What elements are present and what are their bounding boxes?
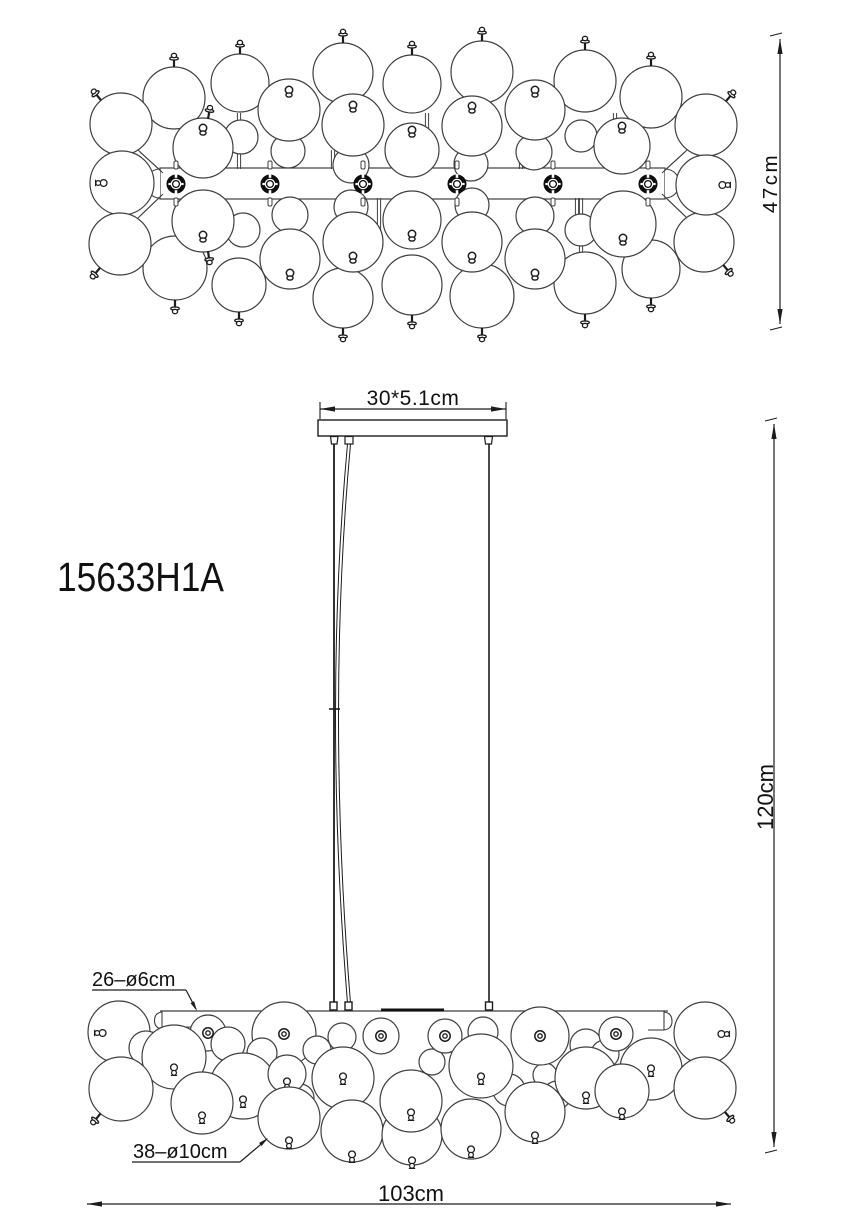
svg-text:15633H1A: 15633H1A	[57, 554, 225, 600]
svg-text:120cm: 120cm	[753, 764, 778, 830]
svg-text:30*5.1cm: 30*5.1cm	[367, 387, 460, 410]
svg-text:38–ø10cm: 38–ø10cm	[133, 1141, 228, 1163]
svg-text:47cm: 47cm	[759, 153, 782, 213]
svg-text:103cm: 103cm	[378, 1181, 444, 1206]
svg-text:26–ø6cm: 26–ø6cm	[92, 969, 175, 991]
